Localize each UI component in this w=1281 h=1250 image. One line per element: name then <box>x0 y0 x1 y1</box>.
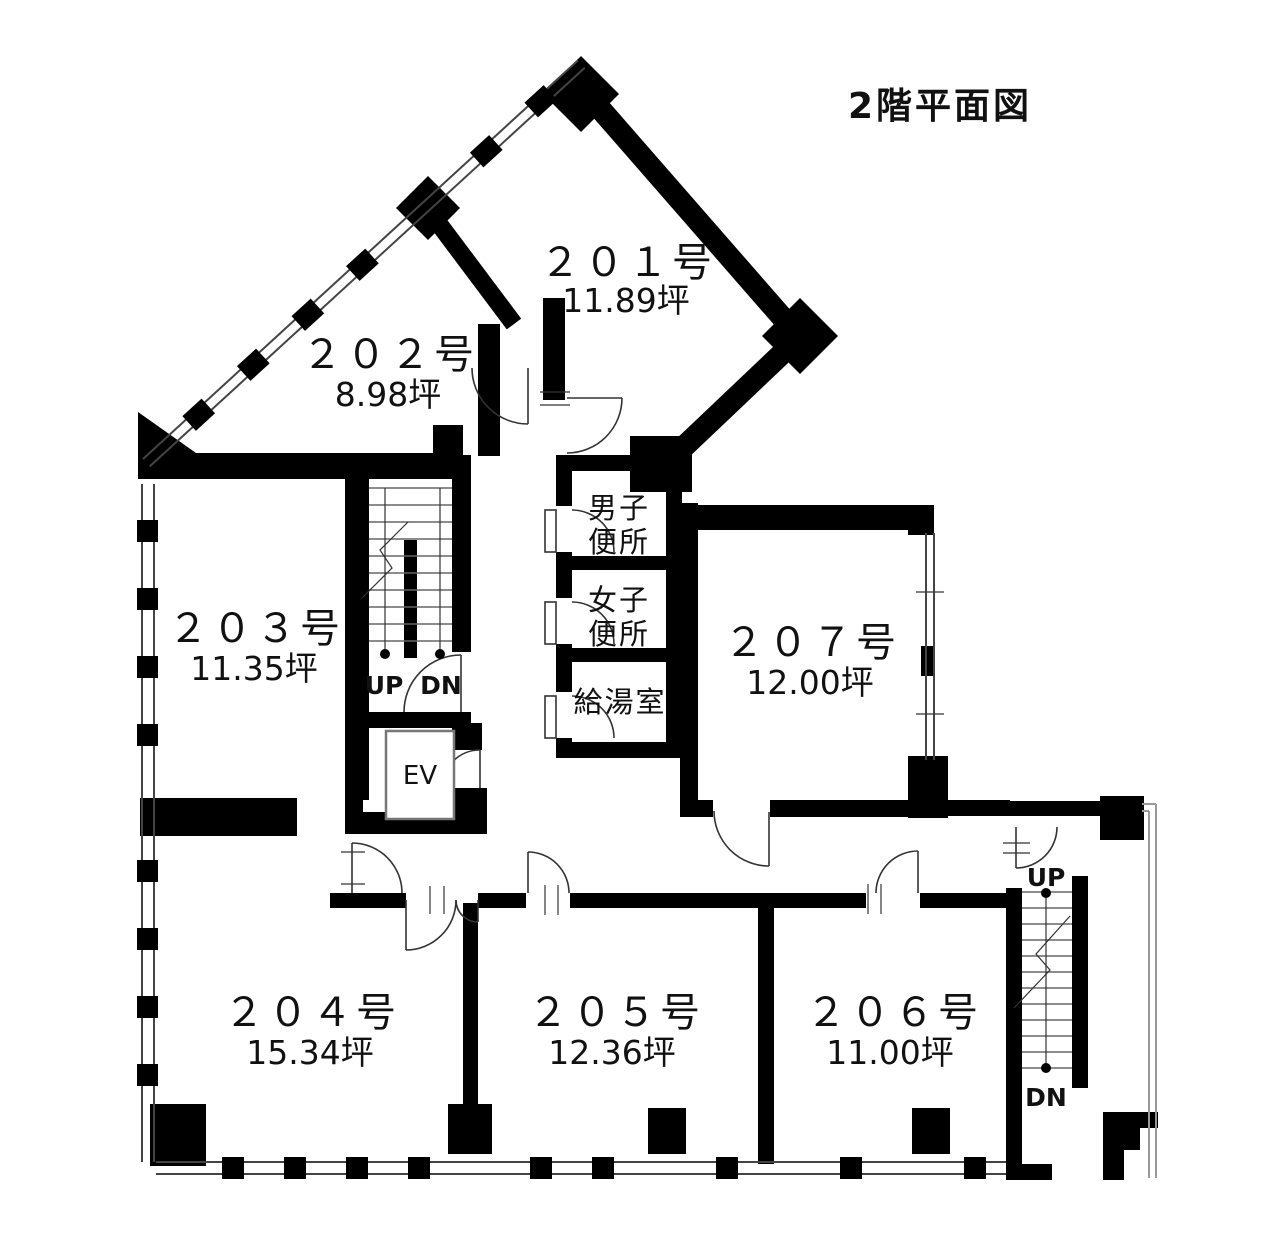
page-title: 2階平面図 <box>848 86 1032 127</box>
mens-toilet-label-line1: 男子 <box>588 491 650 525</box>
center-stairs-up-label: UP <box>365 671 404 700</box>
room-207-name: ２０７号 <box>724 620 900 666</box>
room-206-area: 11.00坪 <box>826 1033 953 1072</box>
right-stairs-up-label: UP <box>1027 863 1066 892</box>
room-203-area: 11.35坪 <box>190 649 317 688</box>
elevator-label: EV <box>403 761 437 791</box>
floor-plan-page: 2階平面図 ２０１号 11.89坪 ２０２号 8.98坪 ２０３号 11.35坪… <box>0 0 1281 1250</box>
womens-toilet-label-line2: 便所 <box>588 617 650 651</box>
womens-toilet-label-line1: 女子 <box>588 583 650 617</box>
room-205-name: ２０５号 <box>528 990 704 1036</box>
room-202-area: 8.98坪 <box>335 375 441 414</box>
kitchenette-label: 給湯室 <box>573 685 666 719</box>
room-206-name: ２０６号 <box>806 990 982 1036</box>
room-204-name: ２０４号 <box>224 990 400 1036</box>
room-201-area: 11.89坪 <box>562 281 689 320</box>
right-staircase <box>1014 888 1072 1073</box>
room-207-area: 12.00坪 <box>746 663 873 702</box>
room-205-area: 12.36坪 <box>548 1033 675 1072</box>
mens-toilet-label-line2: 便所 <box>588 525 650 559</box>
room-202-name: ２０２号 <box>302 332 478 378</box>
room-204-area: 15.34坪 <box>246 1033 373 1072</box>
room-201-name: ２０１号 <box>540 240 716 286</box>
center-stairs-dn-label: DN <box>420 671 462 700</box>
room-203-name: ２０３号 <box>168 606 344 652</box>
floor-plan-drawing: 2階平面図 ２０１号 11.89坪 ２０２号 8.98坪 ２０３号 11.35坪… <box>0 0 1281 1250</box>
right-stairs-dn-label: DN <box>1025 1083 1067 1112</box>
